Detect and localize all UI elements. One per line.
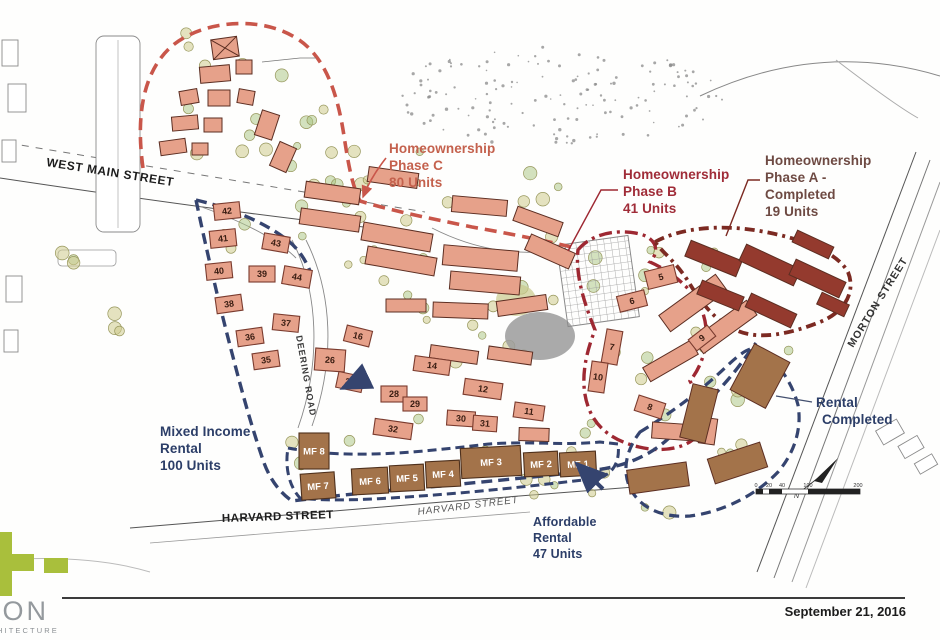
stipple-dot <box>589 136 592 139</box>
building-40: 40 <box>205 262 233 281</box>
tree <box>326 147 338 159</box>
tree <box>784 346 793 355</box>
building-mf-8: MF 8 <box>299 433 329 469</box>
stipple-dot <box>494 52 496 54</box>
stipple-dot <box>677 75 680 78</box>
stipple-dot <box>419 79 422 82</box>
stipple-dot <box>432 114 435 117</box>
building-number-label: 44 <box>291 271 303 283</box>
building-number-label: 38 <box>223 298 234 309</box>
annotation-line: Homeownership <box>765 152 871 169</box>
building <box>789 259 846 298</box>
stipple-dot <box>684 70 686 72</box>
stipple-dot <box>577 76 579 78</box>
tree <box>554 183 562 191</box>
stipple-dot <box>558 64 561 67</box>
site-plan-drawing: 4241403943443837363526271628293230311412… <box>0 0 940 640</box>
stipple-dot <box>547 60 550 63</box>
building <box>208 90 230 106</box>
building-37: 37 <box>272 314 300 333</box>
building <box>513 206 563 237</box>
mf-building-label: MF 7 <box>307 481 329 493</box>
annotation-line: Phase C <box>389 157 495 174</box>
building-number-label: 41 <box>217 233 228 244</box>
stipple-dot <box>693 109 696 112</box>
stipple-dot <box>612 82 615 85</box>
building-43: 43 <box>262 233 290 253</box>
tree <box>647 246 655 254</box>
stipple-dot <box>537 63 539 65</box>
stipple-dot <box>653 90 655 92</box>
annotation-line: Phase A - <box>765 169 871 186</box>
building-16: 16 <box>343 325 372 347</box>
tree <box>239 219 251 231</box>
stipple-dot <box>567 117 570 120</box>
building <box>159 138 187 155</box>
building <box>211 36 240 59</box>
stipple-dot <box>435 91 438 94</box>
stipple-dot <box>553 118 556 121</box>
mf-building-label: MF 8 <box>303 447 325 458</box>
tree <box>379 276 389 286</box>
stipple-dot <box>600 94 602 96</box>
stipple-dot <box>692 70 695 73</box>
building-8: 8 <box>634 395 666 419</box>
stipple-dot <box>685 115 688 118</box>
stipple-dot <box>691 85 694 88</box>
rental-completed-annotation: Rental Completed <box>816 394 893 428</box>
stipple-dot <box>429 119 432 122</box>
tree <box>414 414 424 424</box>
building-number-label: 32 <box>387 423 398 434</box>
tree <box>404 291 412 299</box>
stipple-dot <box>503 122 506 125</box>
stipple-dot <box>516 82 518 84</box>
stipple-dot <box>507 126 509 128</box>
rental-completed-leader <box>776 396 812 402</box>
stipple-dot <box>653 61 656 64</box>
stipple-dot <box>563 103 565 105</box>
building-29: 29 <box>403 397 427 411</box>
stipple-dot <box>686 95 688 97</box>
building-5: 5 <box>644 265 677 290</box>
building-mf-2: MF 2 <box>523 451 558 477</box>
stipple-dot <box>610 83 612 85</box>
building-11: 11 <box>513 402 545 421</box>
stipple-dot <box>475 98 477 100</box>
building-number-label: 36 <box>244 331 255 342</box>
building-32: 32 <box>373 418 413 439</box>
stipple-dot <box>484 133 487 136</box>
stipple-dot <box>669 64 672 67</box>
buildings-layer: 4241403943443837363526271628293230311412… <box>159 36 849 500</box>
annotation-line: Completed <box>765 186 871 203</box>
tree <box>401 215 412 226</box>
tree <box>635 373 646 384</box>
stipple-dot <box>427 96 430 99</box>
tree <box>108 307 122 321</box>
stipple-dot <box>672 63 675 66</box>
building-number-label: 40 <box>213 266 224 277</box>
stipple-dot <box>443 129 445 131</box>
tree <box>236 145 249 158</box>
building-mf-3: MF 3 <box>460 445 521 478</box>
stipple-dot <box>427 79 429 81</box>
phase-c-annotation: Homeownership Phase C 80 Units <box>389 140 495 191</box>
scale-tick-label: 20 <box>766 483 772 489</box>
tree <box>642 352 654 364</box>
building <box>386 299 426 312</box>
stipple-dot <box>445 93 447 95</box>
stipple-dot <box>588 72 590 74</box>
stipple-dot <box>489 101 492 104</box>
annotation-line: Phase B <box>623 183 729 200</box>
annotation-line: 19 Units <box>765 203 871 220</box>
stipple-dot <box>493 79 496 82</box>
tree <box>244 130 255 141</box>
stipple-dot <box>406 104 409 107</box>
building-number-label: 28 <box>389 389 399 399</box>
stipple-dot <box>486 70 488 72</box>
annotation-line: Affordable <box>533 514 597 530</box>
building-number-label: 26 <box>325 355 336 366</box>
stipple-dot <box>486 60 489 63</box>
building-number-label: 43 <box>270 237 282 249</box>
stipple-dot <box>579 93 582 96</box>
building-35: 35 <box>252 350 280 369</box>
stipple-dot <box>710 80 712 82</box>
building-38: 38 <box>215 294 243 313</box>
building-30: 30 <box>447 410 476 427</box>
annotation-line: 47 Units <box>533 546 597 562</box>
stipple-dot <box>609 111 612 114</box>
stipple-dot <box>468 115 470 117</box>
building <box>451 196 507 217</box>
stipple-dot <box>578 53 581 56</box>
stipple-dot <box>560 94 562 96</box>
annotation-line: 41 Units <box>623 200 729 217</box>
building-number-label: 29 <box>410 399 420 409</box>
stipple-dot <box>453 86 455 88</box>
stipple-dot <box>412 72 415 75</box>
scale-tick-label: 100 <box>803 483 812 489</box>
tree <box>67 257 80 270</box>
deering-road-label: DEERING ROAD <box>294 335 318 418</box>
building-number-label: 30 <box>456 413 467 424</box>
tree <box>184 42 193 51</box>
stipple-dot <box>486 93 488 95</box>
scale-tick-label: 0 <box>754 483 757 489</box>
tree <box>536 192 550 206</box>
stipple-dot <box>533 124 535 126</box>
building-36: 36 <box>236 327 264 346</box>
stipple-dot <box>420 84 423 87</box>
building-31: 31 <box>473 415 498 432</box>
stipple-dot <box>649 110 651 112</box>
building-7: 7 <box>601 329 623 365</box>
building <box>199 65 230 84</box>
stipple-dot <box>575 78 578 81</box>
building <box>237 89 255 106</box>
stipple-dot <box>647 134 650 137</box>
building <box>433 302 488 319</box>
annotation-line: Homeownership <box>389 140 495 157</box>
stipple-dot <box>586 88 589 91</box>
stipple-dot <box>489 109 491 111</box>
scanned-site-plan-page: 4241403943443837363526271628293230311412… <box>0 0 940 640</box>
tree <box>298 232 306 240</box>
tree <box>115 326 125 336</box>
stipple-dot <box>644 99 647 102</box>
building <box>685 240 742 276</box>
tree <box>260 143 273 156</box>
building <box>236 60 252 74</box>
stipple-dot <box>673 84 676 87</box>
building <box>792 230 834 259</box>
stipple-dot <box>566 142 568 144</box>
building-10: 10 <box>588 361 608 393</box>
stipple-dot <box>641 64 644 67</box>
building <box>171 115 198 131</box>
building <box>204 118 222 132</box>
tree <box>348 145 360 157</box>
stipple-dot <box>534 99 537 102</box>
stipple-dot <box>460 63 463 66</box>
phase-a-annotation: Homeownership Phase A - Completed 19 Uni… <box>765 152 871 220</box>
stipple-dot <box>575 118 578 121</box>
tree <box>548 295 558 305</box>
stipple-dot <box>401 95 403 97</box>
harvard-street-label: HARVARD STREET <box>222 509 334 525</box>
stipple-dot <box>507 63 510 66</box>
tree <box>588 490 595 497</box>
stipple-dot <box>425 65 427 67</box>
stipple-dot <box>604 111 607 114</box>
logo-mark-icon <box>0 532 12 596</box>
stipple-dot <box>636 104 639 107</box>
annotation-line: 100 Units <box>160 457 250 474</box>
building-number-label: 39 <box>257 269 267 279</box>
stipple-dot <box>614 99 616 101</box>
mf-building-label: MF 5 <box>396 473 419 485</box>
mf-building-label: MF 4 <box>432 469 455 481</box>
stipple-dot <box>522 112 524 114</box>
stipple-dot <box>603 99 606 102</box>
building <box>192 143 208 155</box>
stipple-dot <box>554 141 557 144</box>
logo-mark-icon <box>12 554 34 571</box>
building-number-label: 42 <box>221 206 232 217</box>
stipple-dot <box>597 56 600 59</box>
stipple-dot <box>596 136 598 138</box>
tree <box>524 167 537 180</box>
stipple-dot <box>511 81 513 83</box>
annotation-line: Rental <box>160 440 250 457</box>
stipple-dot <box>528 61 530 63</box>
phase-b-annotation: Homeownership Phase B 41 Units <box>623 166 729 217</box>
stipple-dot <box>572 79 575 82</box>
stipple-dot <box>511 86 513 88</box>
stipple-dot <box>423 122 426 125</box>
stipple-dot <box>664 83 666 85</box>
stipple-dot <box>653 122 655 124</box>
stipple-dot <box>544 95 547 98</box>
stipple-dot <box>649 71 651 73</box>
annotation-line: Rental <box>816 394 893 411</box>
stipple-dot <box>534 55 536 57</box>
stipple-dot <box>685 74 688 77</box>
tree <box>307 115 317 125</box>
stipple-dot <box>501 84 504 87</box>
tree <box>286 436 298 448</box>
logo-mark-icon <box>44 558 68 573</box>
stipple-dot <box>495 88 497 90</box>
stipple-dot <box>678 126 680 128</box>
stipple-dot <box>695 82 697 84</box>
stipple-dot <box>615 76 618 79</box>
tree <box>275 69 288 82</box>
stipple-dot <box>438 69 441 72</box>
stipple-dot <box>721 99 723 101</box>
tree <box>518 196 530 208</box>
stipple-dot <box>414 92 416 94</box>
playground-note-leader <box>262 58 316 62</box>
stipple-dot <box>571 142 573 144</box>
logo-word: CON <box>0 596 49 627</box>
tree <box>468 320 478 330</box>
building-39: 39 <box>249 266 275 282</box>
building-number-label: 10 <box>592 371 603 382</box>
stipple-dot <box>429 90 432 93</box>
stipple-dot <box>511 103 513 105</box>
stipple-dot <box>621 115 624 118</box>
stipple-dot <box>596 133 598 135</box>
building-mf-7: MF 7 <box>300 472 336 500</box>
tree <box>478 332 486 340</box>
stipple-dot <box>592 104 594 106</box>
building <box>442 245 518 271</box>
footer-rule <box>62 597 905 599</box>
date-label: September 21, 2016 <box>785 604 906 619</box>
mf-building-label: MF 2 <box>530 459 552 471</box>
annotation-line: Mixed Income <box>160 423 250 440</box>
scale-bar: 02040100200 <box>754 483 862 494</box>
stipple-dot <box>486 115 489 118</box>
stipple-dot <box>485 82 488 85</box>
building-12: 12 <box>463 378 503 399</box>
building-mf-4: MF 4 <box>425 460 460 488</box>
stipple-dot <box>492 121 494 123</box>
annotation-line: 80 Units <box>389 174 495 191</box>
building <box>449 271 520 295</box>
stipple-dot <box>630 106 633 109</box>
stipple-dot <box>572 139 575 142</box>
stipple-dot <box>558 128 561 131</box>
stipple-dot <box>677 71 679 73</box>
icon-architecture-logo: CON RCHITECTURE <box>0 528 102 633</box>
affordable-rental-annotation: Affordable Rental 47 Units <box>533 514 597 562</box>
stipple-dot <box>450 62 452 64</box>
building <box>519 427 549 441</box>
building-number-label: 11 <box>524 406 535 417</box>
tree <box>344 435 355 446</box>
stipple-dot <box>715 95 717 97</box>
building <box>627 462 690 494</box>
stipple-dot <box>666 59 668 61</box>
building-mf-5: MF 5 <box>389 464 424 492</box>
stipple-dot <box>542 76 544 78</box>
annotation-line: Rental <box>533 530 597 546</box>
stipple-dot <box>429 62 432 65</box>
building-41: 41 <box>209 229 237 249</box>
stipple-dot <box>518 55 520 57</box>
tree <box>580 428 590 438</box>
mf-building-label: MF 6 <box>359 476 381 488</box>
building <box>299 208 361 232</box>
building-number-label: 31 <box>480 418 491 429</box>
tree <box>345 261 353 269</box>
stipple-dot <box>652 83 655 86</box>
stipple-dot <box>566 135 568 137</box>
stipple-dot <box>493 126 496 129</box>
mixed-income-annotation: Mixed Income Rental 100 Units <box>160 423 250 474</box>
building-number-label: 35 <box>260 354 271 365</box>
logo-subtext: RCHITECTURE <box>0 626 59 635</box>
stipple-dot <box>477 128 480 131</box>
stipple-dot <box>494 118 496 120</box>
stipple-dot <box>622 133 625 136</box>
scale-tick-label: 200 <box>853 483 862 489</box>
stipple-dot <box>681 124 684 127</box>
stipple-dot <box>407 111 410 114</box>
scale-tick-label: 40 <box>779 483 785 489</box>
stipple-dot <box>702 119 704 121</box>
stipple-dot <box>445 108 448 111</box>
tree <box>55 246 69 260</box>
annotation-line: Completed <box>822 411 893 428</box>
building <box>179 89 199 106</box>
tree <box>423 316 430 323</box>
stipple-dot <box>471 106 474 109</box>
stipple-dot <box>585 104 587 106</box>
building-number-label: 14 <box>426 360 437 371</box>
stipple-dot <box>707 95 710 98</box>
stipple-dot <box>603 59 606 62</box>
tree <box>530 491 539 500</box>
stipple-texture-layer <box>401 46 723 145</box>
building <box>745 293 797 328</box>
stipple-dot <box>596 69 599 72</box>
stipple-dot <box>555 137 558 140</box>
stipple-dot <box>687 81 689 83</box>
stipple-dot <box>410 112 413 115</box>
stipple-dot <box>553 133 555 135</box>
stipple-dot <box>450 65 452 67</box>
stipple-dot <box>577 107 579 109</box>
building-number-label: 12 <box>477 383 488 394</box>
mf-building-label: MF 3 <box>480 457 502 469</box>
tree <box>319 105 328 114</box>
building-mf-6: MF 6 <box>351 467 388 495</box>
stipple-dot <box>478 65 480 67</box>
stipple-dot <box>457 108 459 110</box>
stipple-dot <box>550 98 552 100</box>
stipple-dot <box>541 46 544 49</box>
stipple-dot <box>467 134 470 137</box>
stipple-dot <box>595 83 597 85</box>
building <box>739 244 801 286</box>
stipple-dot <box>638 97 640 99</box>
